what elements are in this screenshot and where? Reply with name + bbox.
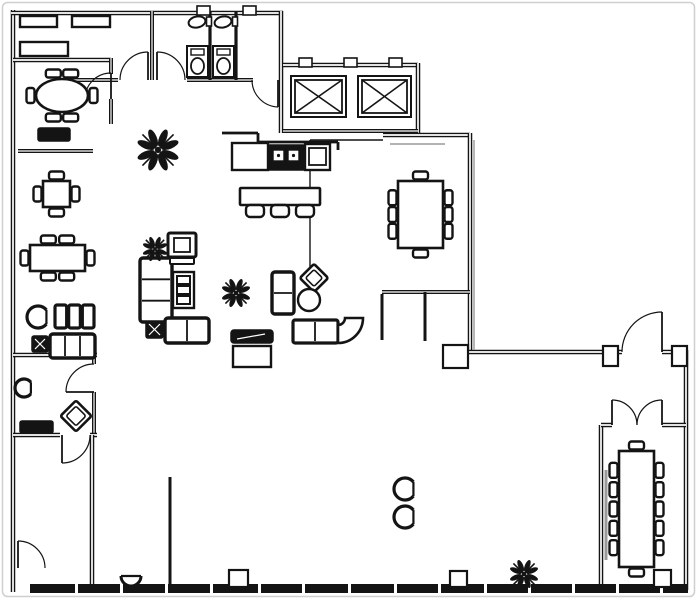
bar-table — [240, 188, 320, 217]
round-table — [298, 289, 320, 311]
boardroom-door-left — [612, 400, 637, 425]
accent-chair — [60, 400, 91, 431]
plant — [221, 278, 251, 308]
accent-chair — [300, 264, 328, 292]
elevator — [291, 76, 346, 117]
column — [443, 345, 468, 368]
sofa — [272, 272, 294, 314]
side-table — [32, 336, 48, 352]
mullion — [197, 6, 210, 15]
tub-chair — [27, 306, 46, 328]
sofa — [140, 258, 172, 322]
column — [672, 346, 687, 366]
mullion — [243, 6, 256, 15]
office-door — [66, 364, 94, 392]
conference-table-8 — [389, 172, 453, 258]
kitchen-counter — [232, 143, 330, 170]
credenza — [38, 128, 70, 141]
vestibule-door-right — [157, 52, 185, 80]
armchair — [168, 233, 196, 264]
plant — [136, 128, 180, 172]
boardroom-table-12 — [610, 442, 664, 577]
boardroom-door-right — [637, 400, 662, 425]
shelf — [173, 272, 194, 308]
sectional-sofa — [293, 318, 363, 343]
mullion — [344, 58, 357, 67]
tub-chair — [394, 506, 413, 528]
cabinet — [233, 346, 271, 367]
column — [654, 570, 671, 587]
column — [603, 346, 618, 366]
credenza — [20, 421, 53, 433]
toilet — [213, 46, 234, 77]
sink — [214, 15, 238, 29]
stairwell-door — [62, 435, 90, 463]
sofa — [165, 318, 209, 343]
column — [229, 570, 248, 587]
elevator — [358, 76, 411, 117]
column — [450, 571, 467, 587]
cafe-table — [34, 172, 80, 217]
cabinet — [20, 42, 68, 56]
stair-exit-door — [18, 541, 45, 568]
guest-chair — [121, 576, 141, 586]
mullion — [299, 58, 312, 67]
mullion — [389, 58, 402, 67]
bench — [55, 305, 94, 328]
oval-meeting-table — [27, 70, 98, 122]
tub-chair — [15, 379, 31, 397]
sink — [188, 15, 212, 29]
cabinet — [72, 16, 110, 27]
cabinet — [20, 16, 57, 27]
walls — [11, 10, 686, 592]
toilet — [187, 46, 208, 77]
sofa — [50, 334, 95, 358]
tub-chair — [394, 478, 413, 500]
floor-plan-canvas — [0, 0, 697, 599]
vestibule-door-left — [120, 52, 148, 80]
entry-door-right — [622, 312, 662, 352]
tv-console — [231, 330, 273, 343]
dining-table — [21, 236, 95, 281]
corridor-door — [252, 80, 278, 107]
